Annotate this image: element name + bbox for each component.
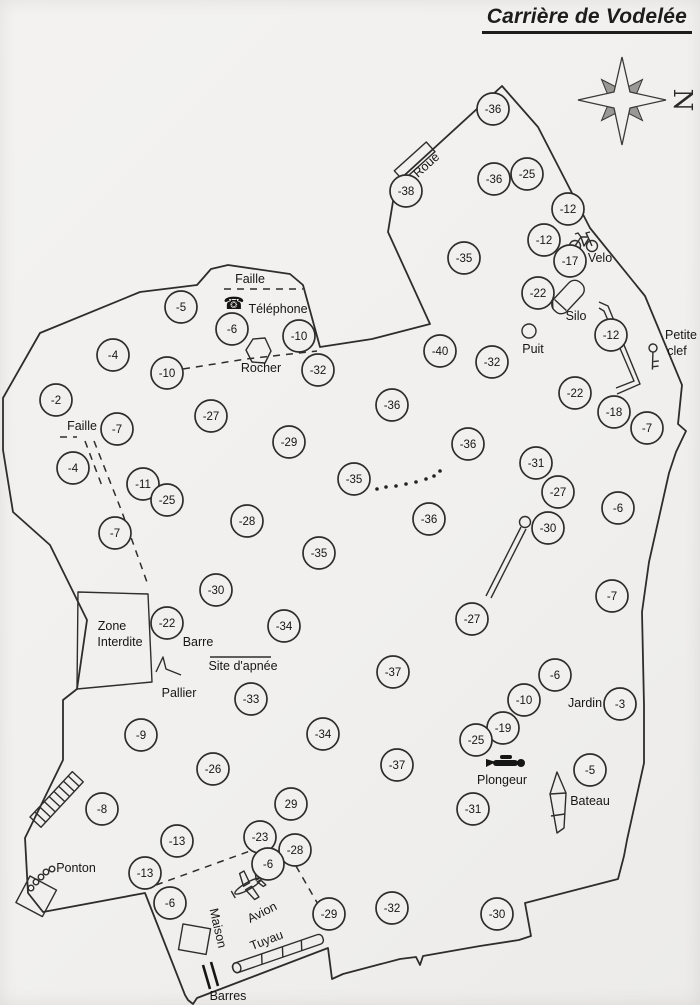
depth-marker: -12 <box>595 319 627 351</box>
place-label: Zone <box>98 619 127 633</box>
telephone-icon: ☎ <box>223 294 244 314</box>
svg-text:-12: -12 <box>560 204 577 216</box>
svg-text:-36: -36 <box>384 400 401 412</box>
svg-text:-27: -27 <box>464 614 481 626</box>
svg-text:-6: -6 <box>263 859 273 871</box>
depth-marker: -13 <box>129 857 161 889</box>
depth-marker: -40 <box>424 335 456 367</box>
place-label: Tuyau <box>248 928 285 953</box>
place-label: Plongeur <box>477 773 527 787</box>
depth-marker: -32 <box>476 346 508 378</box>
depth-marker: -7 <box>631 412 663 444</box>
place-label: Avion <box>245 899 279 926</box>
svg-text:-36: -36 <box>460 439 477 451</box>
svg-text:-7: -7 <box>642 423 652 435</box>
depth-marker: -4 <box>97 339 129 371</box>
svg-text:-31: -31 <box>465 804 482 816</box>
avion-dashed-path-2 <box>296 866 319 906</box>
place-label: Téléphone <box>248 302 307 316</box>
depth-marker: -35 <box>338 463 370 495</box>
key-icon <box>644 343 664 371</box>
depth-marker: -26 <box>197 753 229 785</box>
compass-north-letter: N <box>667 89 697 112</box>
depth-marker: -4 <box>57 452 89 484</box>
depth-marker: -37 <box>377 656 409 688</box>
depth-marker: -29 <box>313 898 345 930</box>
depth-marker: -17 <box>554 245 586 277</box>
place-label: Barre <box>183 635 214 649</box>
place-label: Puit <box>522 342 544 356</box>
place-label: clef <box>667 344 687 358</box>
depth-marker: -18 <box>598 396 630 428</box>
svg-text:-32: -32 <box>384 903 401 915</box>
depth-marker: -34 <box>268 610 300 642</box>
depth-marker: -33 <box>235 683 267 715</box>
depth-marker: -2 <box>40 384 72 416</box>
svg-text:-9: -9 <box>136 730 146 742</box>
svg-text:-34: -34 <box>276 621 293 633</box>
place-label: Pallier <box>162 686 197 700</box>
svg-text:-33: -33 <box>243 694 260 706</box>
depth-marker: -35 <box>448 242 480 274</box>
depth-marker: -8 <box>86 793 118 825</box>
depth-marker: -6 <box>539 659 571 691</box>
place-label: Ponton <box>56 861 96 875</box>
depth-marker: 29 <box>275 788 307 820</box>
place-label: Rocher <box>241 361 281 375</box>
depth-marker: -31 <box>520 447 552 479</box>
depth-marker: -22 <box>522 277 554 309</box>
svg-text:-30: -30 <box>489 909 506 921</box>
svg-text:-10: -10 <box>291 331 308 343</box>
svg-text:-10: -10 <box>516 695 533 707</box>
place-label: Velo <box>588 251 612 265</box>
svg-text:-13: -13 <box>169 836 186 848</box>
depth-marker: -3 <box>604 688 636 720</box>
pole-icon <box>486 517 531 599</box>
svg-text:-38: -38 <box>398 186 415 198</box>
place-label: Site d'apnée <box>208 659 277 673</box>
pallier-step-line <box>156 657 181 675</box>
place-label: Faille <box>235 272 265 286</box>
depth-marker: -27 <box>195 400 227 432</box>
svg-text:-4: -4 <box>108 350 119 362</box>
place-label: Bateau <box>570 794 610 808</box>
depth-marker: -25 <box>511 158 543 190</box>
svg-text:-6: -6 <box>165 898 175 910</box>
svg-text:-34: -34 <box>315 729 332 741</box>
depth-marker: -25 <box>460 724 492 756</box>
depth-marker: -29 <box>273 426 305 458</box>
depth-marker: -36 <box>413 503 445 535</box>
svg-text:-6: -6 <box>613 503 623 515</box>
well-icon <box>522 324 536 338</box>
depth-marker: -32 <box>302 354 334 386</box>
depth-marker: -36 <box>478 163 510 195</box>
svg-text:-6: -6 <box>550 670 560 682</box>
depth-marker: -6 <box>602 492 634 524</box>
compass-rose: N <box>578 57 697 145</box>
svg-text:-35: -35 <box>456 253 473 265</box>
svg-text:-28: -28 <box>287 845 304 857</box>
depth-marker: -30 <box>532 512 564 544</box>
depth-marker: -27 <box>456 603 488 635</box>
depth-marker: -10 <box>508 684 540 716</box>
depth-marker: -37 <box>381 749 413 781</box>
depth-marker: -7 <box>99 517 131 549</box>
depth-marker: -32 <box>376 892 408 924</box>
svg-text:-25: -25 <box>519 169 536 181</box>
svg-text:-23: -23 <box>252 832 269 844</box>
svg-text:-32: -32 <box>310 365 327 377</box>
depth-marker: -36 <box>376 389 408 421</box>
svg-text:-11: -11 <box>135 479 151 491</box>
svg-text:-17: -17 <box>562 256 579 268</box>
place-label: Roue <box>411 150 443 180</box>
depth-marker: -22 <box>151 607 183 639</box>
svg-text:-22: -22 <box>159 618 176 630</box>
depth-marker: -27 <box>542 476 574 508</box>
depth-marker: -12 <box>528 224 560 256</box>
svg-text:-36: -36 <box>485 104 502 116</box>
bars-icon <box>203 962 218 989</box>
depth-marker: -9 <box>125 719 157 751</box>
place-label: Barres <box>210 989 247 1003</box>
svg-text:-19: -19 <box>495 723 512 735</box>
svg-text:-26: -26 <box>205 764 222 776</box>
svg-text:-27: -27 <box>550 487 567 499</box>
svg-text:-12: -12 <box>603 330 620 342</box>
depth-marker: -7 <box>596 580 628 612</box>
depth-marker: -34 <box>307 718 339 750</box>
svg-text:-5: -5 <box>585 765 595 777</box>
depth-marker: -7 <box>101 413 133 445</box>
svg-text:-40: -40 <box>432 346 449 358</box>
diver-icon <box>486 755 525 767</box>
svg-text:-18: -18 <box>606 407 623 419</box>
svg-text:-36: -36 <box>421 514 438 526</box>
depth-marker: -36 <box>452 428 484 460</box>
svg-text:29: 29 <box>285 799 298 811</box>
depth-marker: -12 <box>552 193 584 225</box>
place-label: Faille <box>67 419 97 433</box>
stairs-icon <box>30 772 83 828</box>
svg-text:-25: -25 <box>468 735 485 747</box>
place-label: Silo <box>566 309 587 323</box>
svg-text:-6: -6 <box>227 324 237 336</box>
svg-text:-13: -13 <box>137 868 154 880</box>
depth-marker: -6 <box>216 313 248 345</box>
svg-text:-35: -35 <box>346 474 363 486</box>
svg-text:-4: -4 <box>68 463 79 475</box>
quarry-map: N <box>0 0 700 1005</box>
svg-text:-30: -30 <box>540 523 557 535</box>
depth-marker: -25 <box>151 484 183 516</box>
svg-text:-32: -32 <box>484 357 501 369</box>
svg-text:-5: -5 <box>176 302 186 314</box>
depth-marker: -38 <box>390 175 422 207</box>
svg-text:-22: -22 <box>567 388 584 400</box>
depth-marker: -6 <box>252 848 284 880</box>
svg-text:-10: -10 <box>159 368 176 380</box>
depth-marker: -28 <box>231 505 263 537</box>
svg-text:-29: -29 <box>281 437 298 449</box>
svg-text:-29: -29 <box>321 909 338 921</box>
depth-marker: -36 <box>477 93 509 125</box>
svg-text:-7: -7 <box>112 424 122 436</box>
svg-text:-35: -35 <box>311 548 328 560</box>
depth-marker: -5 <box>574 754 606 786</box>
svg-text:-2: -2 <box>51 395 61 407</box>
depth-marker: -13 <box>161 825 193 857</box>
compass-main-star <box>578 57 666 145</box>
svg-text:-3: -3 <box>615 699 625 711</box>
pontoon-icon <box>16 866 57 916</box>
svg-text:-37: -37 <box>385 667 402 679</box>
svg-text:-37: -37 <box>389 760 406 772</box>
depth-marker: -5 <box>165 291 197 323</box>
svg-text:-7: -7 <box>607 591 617 603</box>
depth-marker: -30 <box>200 574 232 606</box>
depth-marker: -10 <box>151 357 183 389</box>
svg-text:-30: -30 <box>208 585 225 597</box>
place-label: Petite <box>665 328 697 342</box>
svg-text:-22: -22 <box>530 288 547 300</box>
fault-dashed-line-left-b <box>94 441 148 585</box>
svg-text:-36: -36 <box>486 174 503 186</box>
svg-text:-8: -8 <box>97 804 107 816</box>
depth-marker: -31 <box>457 793 489 825</box>
depth-marker: -30 <box>481 898 513 930</box>
svg-text:-7: -7 <box>110 528 120 540</box>
dotted-line <box>375 469 442 491</box>
place-label: Jardin <box>568 696 602 710</box>
place-label: Interdite <box>97 635 142 649</box>
svg-text:-27: -27 <box>203 411 220 423</box>
svg-text:-25: -25 <box>159 495 176 507</box>
depth-marker: -10 <box>283 320 315 352</box>
depth-marker: -22 <box>559 377 591 409</box>
depth-marker: -6 <box>154 887 186 919</box>
depth-marker: -35 <box>303 537 335 569</box>
svg-text:-31: -31 <box>528 458 545 470</box>
svg-text:-28: -28 <box>239 516 256 528</box>
house-icon <box>178 924 210 954</box>
scanned-map-page: Carrière de Vodelée N <box>0 0 700 1005</box>
boat-icon <box>550 772 566 833</box>
svg-text:-12: -12 <box>536 235 553 247</box>
